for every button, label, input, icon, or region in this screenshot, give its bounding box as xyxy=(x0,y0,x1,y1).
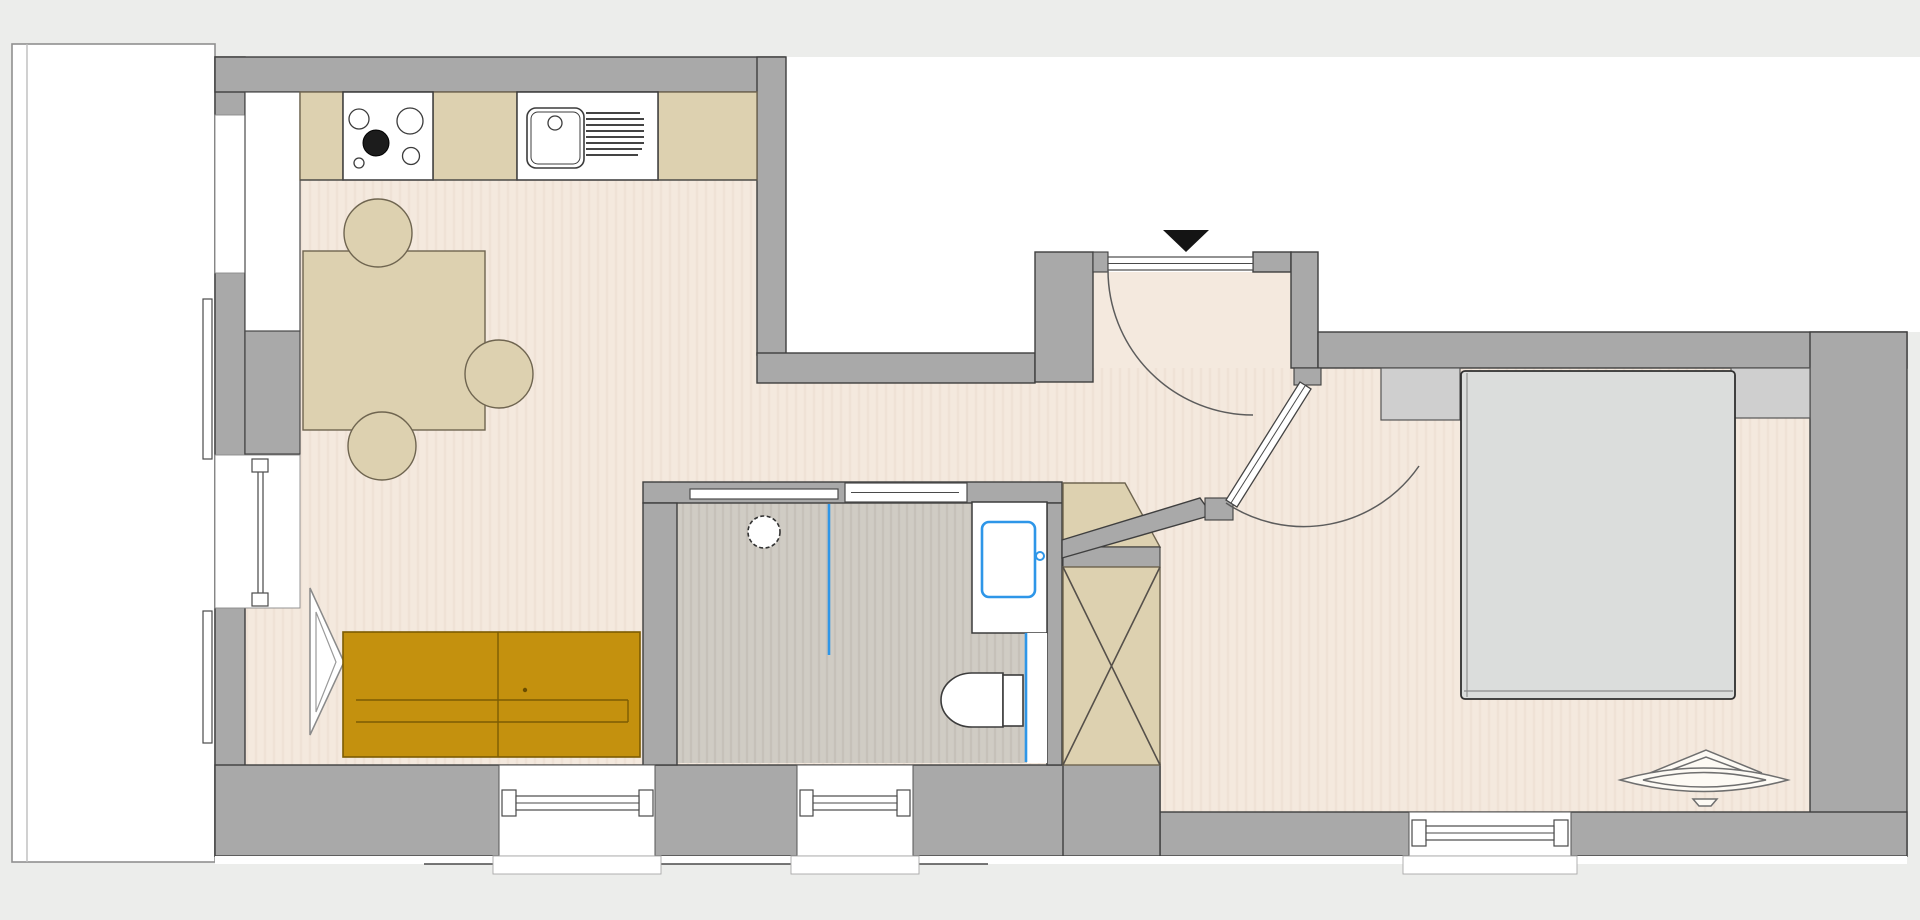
x-braced-cabinet xyxy=(1063,567,1160,765)
balcony-rail-icon xyxy=(203,299,212,459)
wall-north-kitchen xyxy=(215,57,785,92)
cooktop xyxy=(343,92,433,180)
faucet-icon xyxy=(1036,552,1044,560)
balcony-rail-icon xyxy=(203,611,212,743)
window-west-2 xyxy=(215,455,300,608)
wall-south-west-section xyxy=(215,765,1160,856)
chair xyxy=(344,199,412,267)
counter-segment xyxy=(658,92,757,180)
bathroom-panel xyxy=(1027,633,1047,763)
bed xyxy=(1461,371,1735,699)
wall-entry-step xyxy=(1093,252,1108,272)
balcony xyxy=(12,44,215,862)
wall-hall-east-vertical xyxy=(1291,252,1318,368)
sofa-button-icon xyxy=(523,688,527,692)
wardrobe-right xyxy=(1731,368,1810,418)
dining-table xyxy=(303,251,485,430)
window-south-bedroom xyxy=(1403,812,1577,874)
plinth-strip xyxy=(215,856,1907,864)
wall-storage-column-base xyxy=(1063,763,1160,856)
shower-drain-icon xyxy=(748,516,780,548)
toilet xyxy=(941,673,1023,727)
chair xyxy=(348,412,416,480)
wall-entry-pier-right xyxy=(1253,252,1291,272)
kitchen-sink xyxy=(517,92,658,180)
tall-cabinet xyxy=(245,92,300,331)
burner-active-icon xyxy=(363,130,389,156)
toilet-tank xyxy=(1003,675,1023,726)
floor-entry xyxy=(1093,272,1291,382)
door-jamb xyxy=(1294,368,1321,385)
floor-plan-page xyxy=(0,0,1920,920)
washbasin xyxy=(972,502,1047,633)
wall-entry-pier-left xyxy=(1035,252,1093,382)
floor-plan-svg xyxy=(0,0,1920,920)
wall-east xyxy=(1810,332,1907,856)
bathroom-wall-east xyxy=(1047,503,1062,765)
window-south-bathroom xyxy=(791,765,919,874)
sliding-door-panel xyxy=(690,489,838,499)
basin xyxy=(982,522,1035,597)
toilet-bowl xyxy=(941,673,1003,727)
wall-notch-vertical xyxy=(757,57,786,355)
sofa xyxy=(343,632,640,757)
counter-segment xyxy=(433,92,517,180)
bathroom-wall-west xyxy=(643,503,677,765)
window-south-living xyxy=(493,765,661,874)
bathroom xyxy=(643,482,1062,765)
counter-segment xyxy=(300,92,343,180)
wardrobe-left xyxy=(1381,368,1460,420)
chair xyxy=(465,340,533,408)
wall-notch-bottom xyxy=(757,353,1035,383)
wall-pier-inner xyxy=(245,331,300,454)
outside-white-area xyxy=(786,57,1920,353)
